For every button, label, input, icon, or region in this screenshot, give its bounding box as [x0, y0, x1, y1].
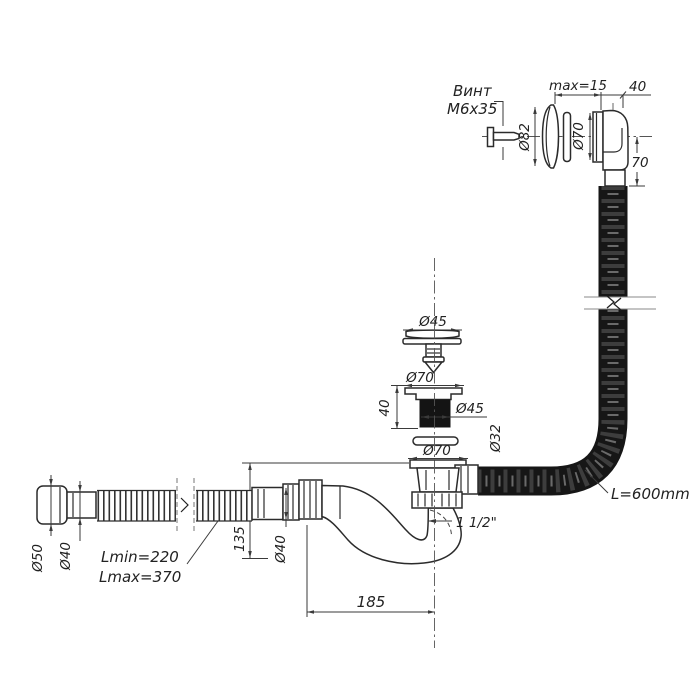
label-trap-inlet-diameter: Ø40 [273, 535, 289, 564]
screw [488, 128, 520, 147]
label-depth-dim: 40 [629, 79, 646, 95]
label-hose-diameter: Ø32 [488, 424, 504, 453]
outlet-cuff [37, 486, 67, 524]
label-screw-size: М6х35 [447, 100, 497, 118]
label-plug-diameter: Ø45 [418, 314, 447, 330]
overflow-outlet-tube [605, 170, 625, 186]
drain-flange-assembly: Ø70 40 Ø45 [377, 370, 487, 445]
overflow-elbow-body [603, 111, 628, 171]
drain-gasket [413, 437, 458, 445]
label-body-diameter: Ø45 [455, 401, 484, 417]
technical-drawing-page: L=600mm Винт М6х35 Ø82 max=15 40 [0, 0, 700, 700]
label-elbow-diameter: Ø70 [571, 122, 587, 151]
label-outlet-height: 70 [631, 155, 648, 171]
label-flange-height: 40 [377, 399, 393, 416]
label-cuff-diameter: Ø50 [30, 544, 46, 573]
label-flange-diameter: Ø70 [405, 370, 434, 386]
label-trap-height: 135 [232, 526, 248, 552]
overflow-cover-disc [543, 105, 559, 168]
label-offset-length: 185 [357, 593, 386, 611]
drain-upper-flange [405, 388, 462, 400]
corrugation-segment-right [196, 491, 252, 522]
label-hose-length: L=600mm [611, 485, 690, 503]
siphon-drawing: L=600mm Винт М6х35 Ø82 max=15 40 [0, 0, 700, 700]
drain-tee-nut [412, 492, 462, 508]
label-outlet-pipe-diameter: Ø40 [58, 542, 74, 571]
outlet-corrugated-pipe: Ø50 Ø40 Lmin=220 Lmax=370 [30, 475, 252, 586]
corrugation-segment-left [97, 491, 176, 522]
drain-body [420, 400, 450, 427]
label-screw-name: Винт [453, 82, 493, 100]
pipe-break-symbol [177, 478, 194, 534]
overflow-assembly: Винт М6х35 Ø82 max=15 40 [447, 78, 651, 186]
label-cover-diameter: Ø82 [517, 123, 533, 152]
label-length-min: Lmin=220 [101, 548, 179, 566]
label-outlet-thread: 1 1/2" [456, 515, 497, 531]
label-length-max: Lmax=370 [99, 568, 181, 586]
hose-break-symbol [584, 296, 656, 310]
drain-plug: Ø45 [403, 314, 462, 373]
overflow-elbow-flange [593, 112, 603, 162]
label-gap-dim: max=15 [549, 78, 607, 94]
trap-inlet-pipe [252, 488, 283, 520]
overflow-gasket [564, 113, 571, 162]
overflow-hose: L=600mm [478, 186, 690, 503]
outlet-cylinder [67, 492, 96, 518]
drain-tee-body [417, 468, 459, 492]
